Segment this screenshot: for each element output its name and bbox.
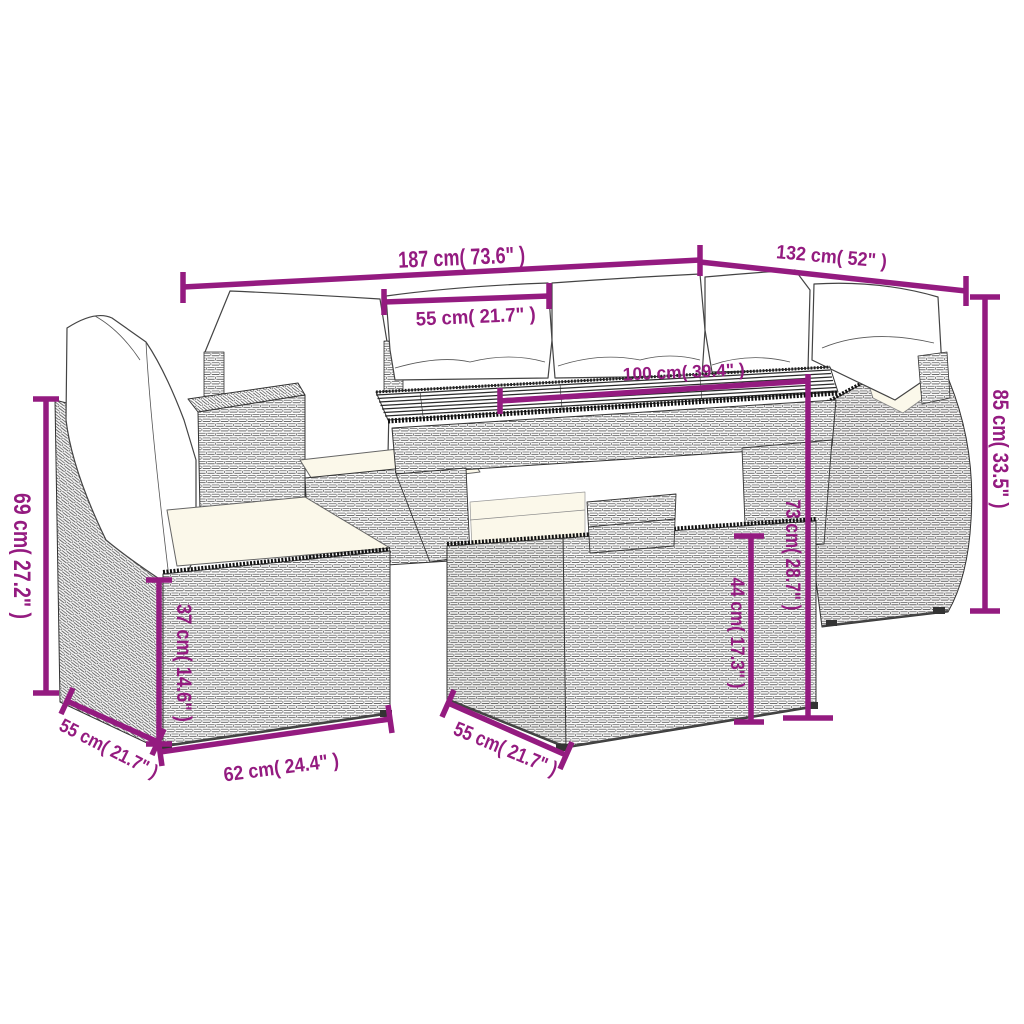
svg-text:44 cm( 17.3" ): 44 cm( 17.3" ) xyxy=(726,578,748,689)
svg-text:69 cm( 27.2" ): 69 cm( 27.2" ) xyxy=(8,493,35,619)
svg-text:37 cm( 14.6" ): 37 cm( 14.6" ) xyxy=(172,604,196,722)
svg-text:187 cm( 73.6" ): 187 cm( 73.6" ) xyxy=(398,241,526,273)
svg-text:73 cm( 28.7" ): 73 cm( 28.7" ) xyxy=(781,500,804,611)
svg-text:85 cm( 33.5" ): 85 cm( 33.5" ) xyxy=(988,390,1013,509)
